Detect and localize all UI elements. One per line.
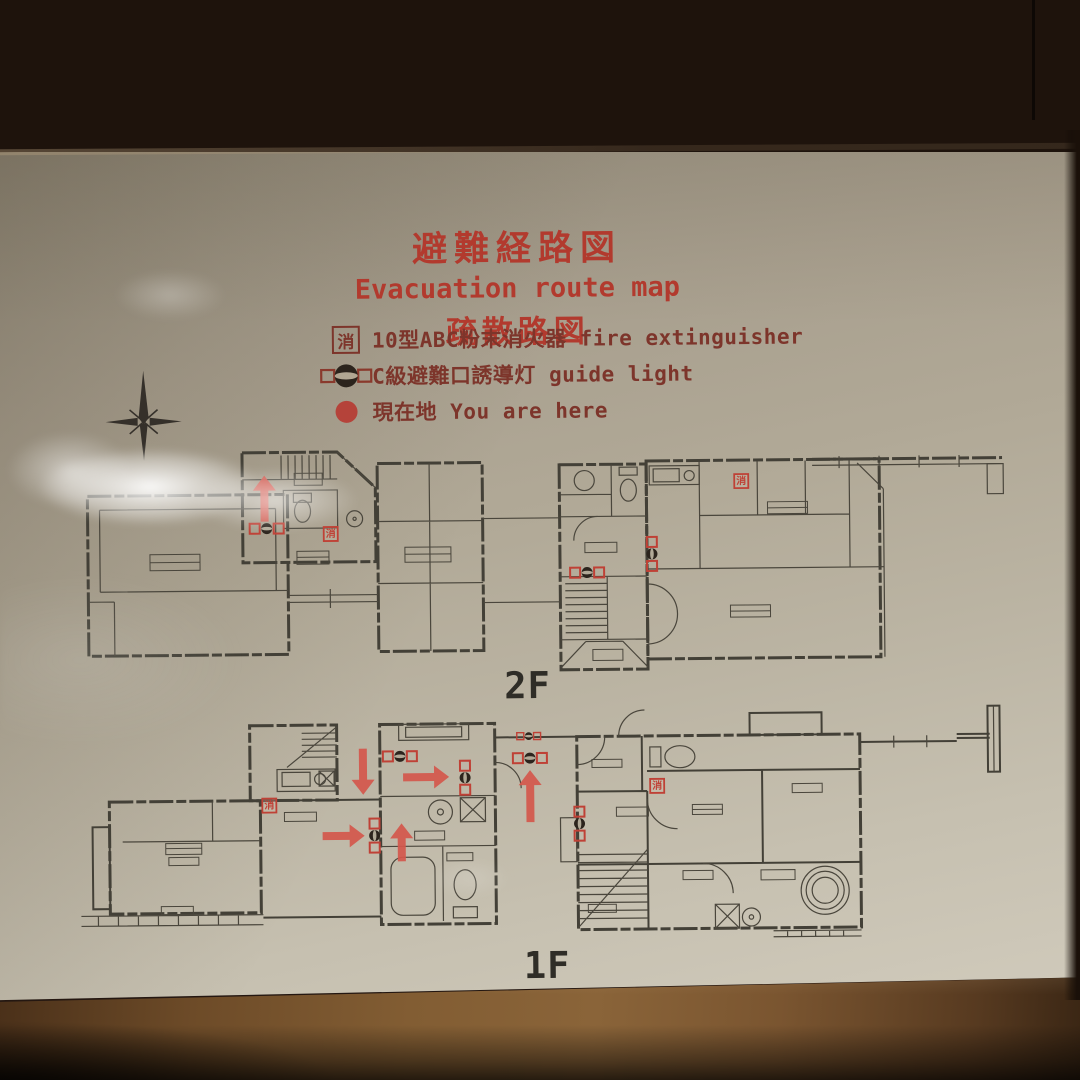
wood-frame-top [0,0,1080,152]
laminated-paper: 避難経路図 Evacuation route map 疏散路図 消 10型ABC… [0,0,1080,1080]
wood-joint-line [1032,0,1035,120]
glossy-glare [0,0,1080,1080]
evacuation-map-photo: 避難経路図 Evacuation route map 疏散路図 消 10型ABC… [0,0,1080,1080]
wood-frame-right [1064,130,1080,1000]
